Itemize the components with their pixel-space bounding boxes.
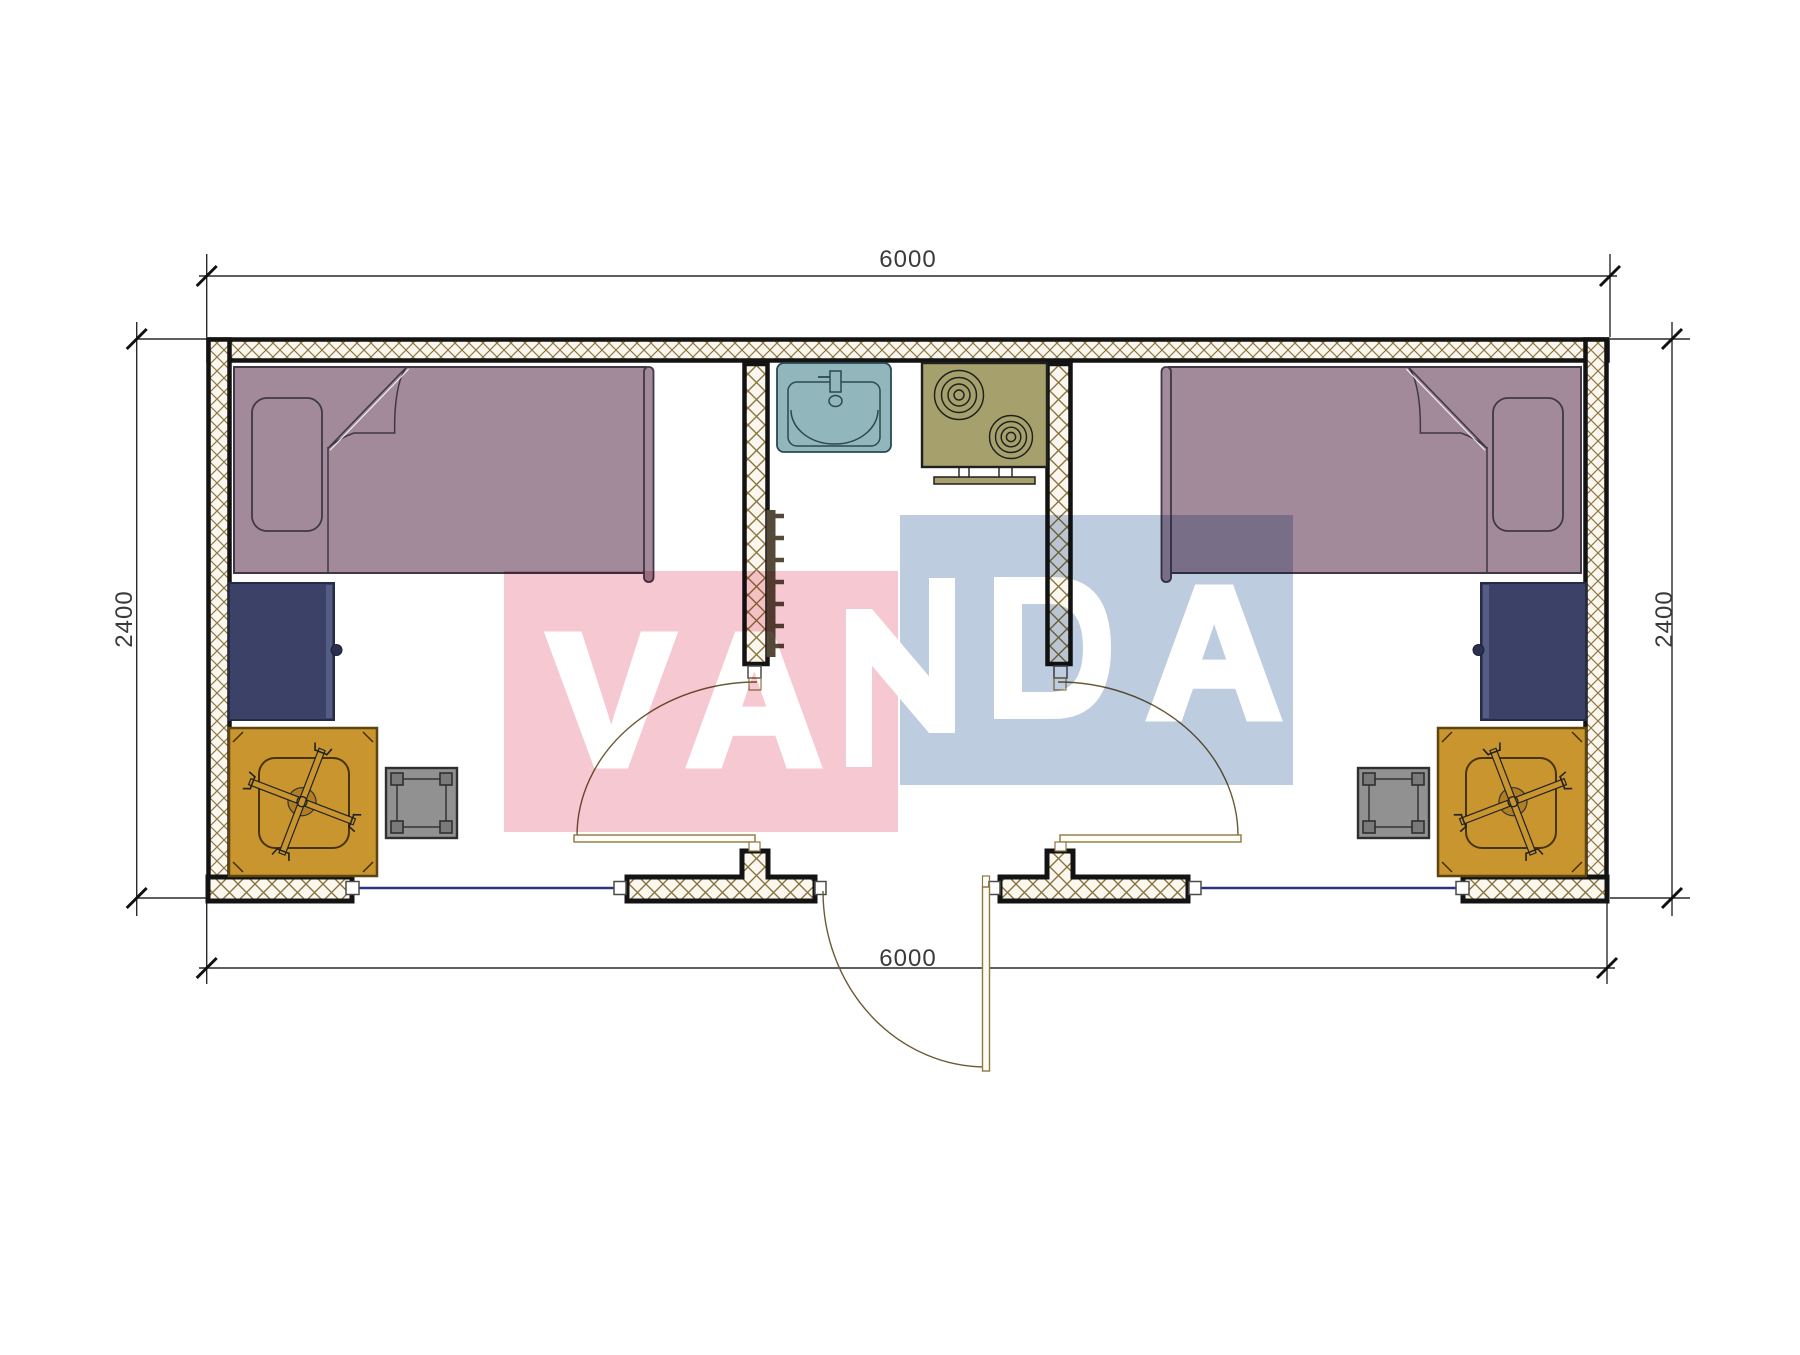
svg-text:6000: 6000	[879, 945, 936, 972]
svg-text:6000: 6000	[879, 246, 936, 273]
svg-text:2400: 2400	[111, 590, 138, 647]
svg-text:2400: 2400	[1651, 590, 1678, 647]
svg-text:V: V	[549, 597, 673, 804]
svg-text:A: A	[687, 597, 821, 804]
svg-text:A: A	[1147, 550, 1281, 757]
